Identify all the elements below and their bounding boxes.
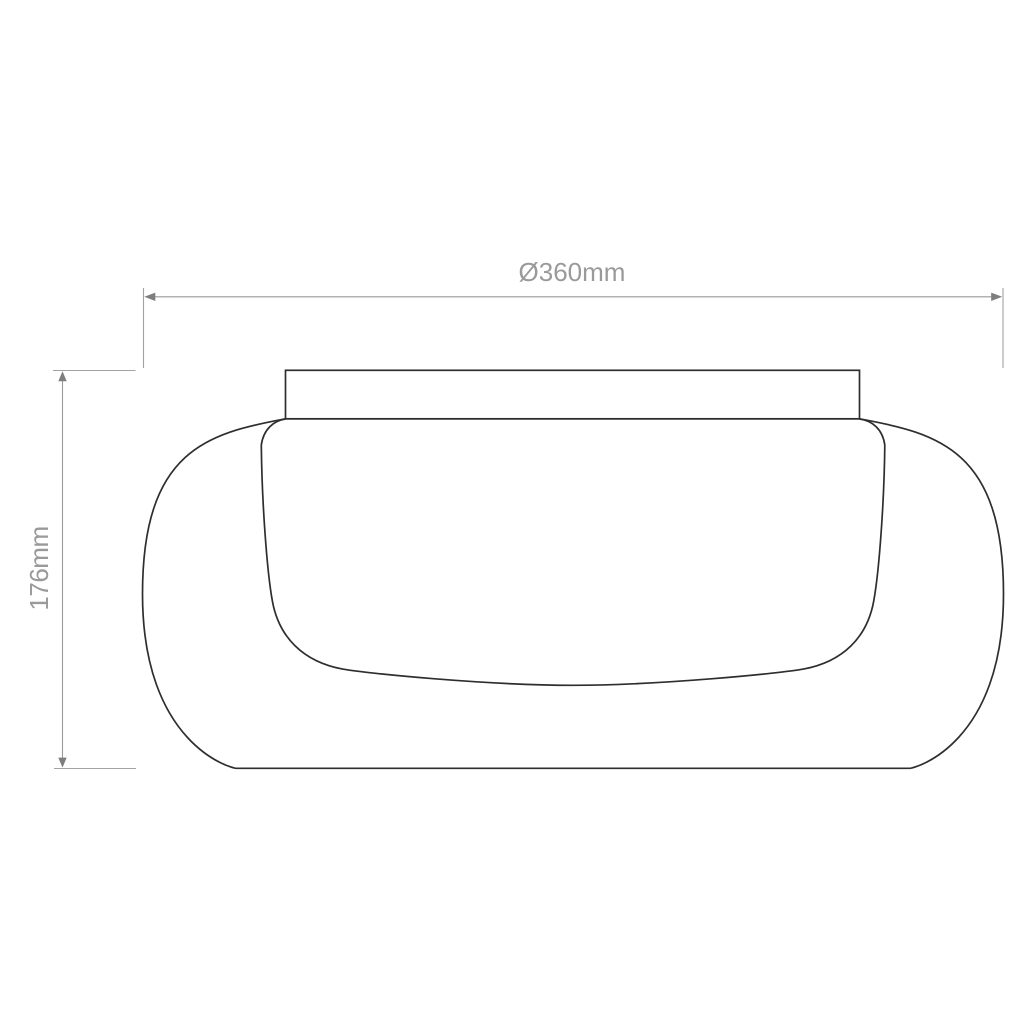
svg-text:176mm: 176mm bbox=[24, 526, 54, 610]
svg-text:Ø360mm: Ø360mm bbox=[519, 257, 626, 287]
